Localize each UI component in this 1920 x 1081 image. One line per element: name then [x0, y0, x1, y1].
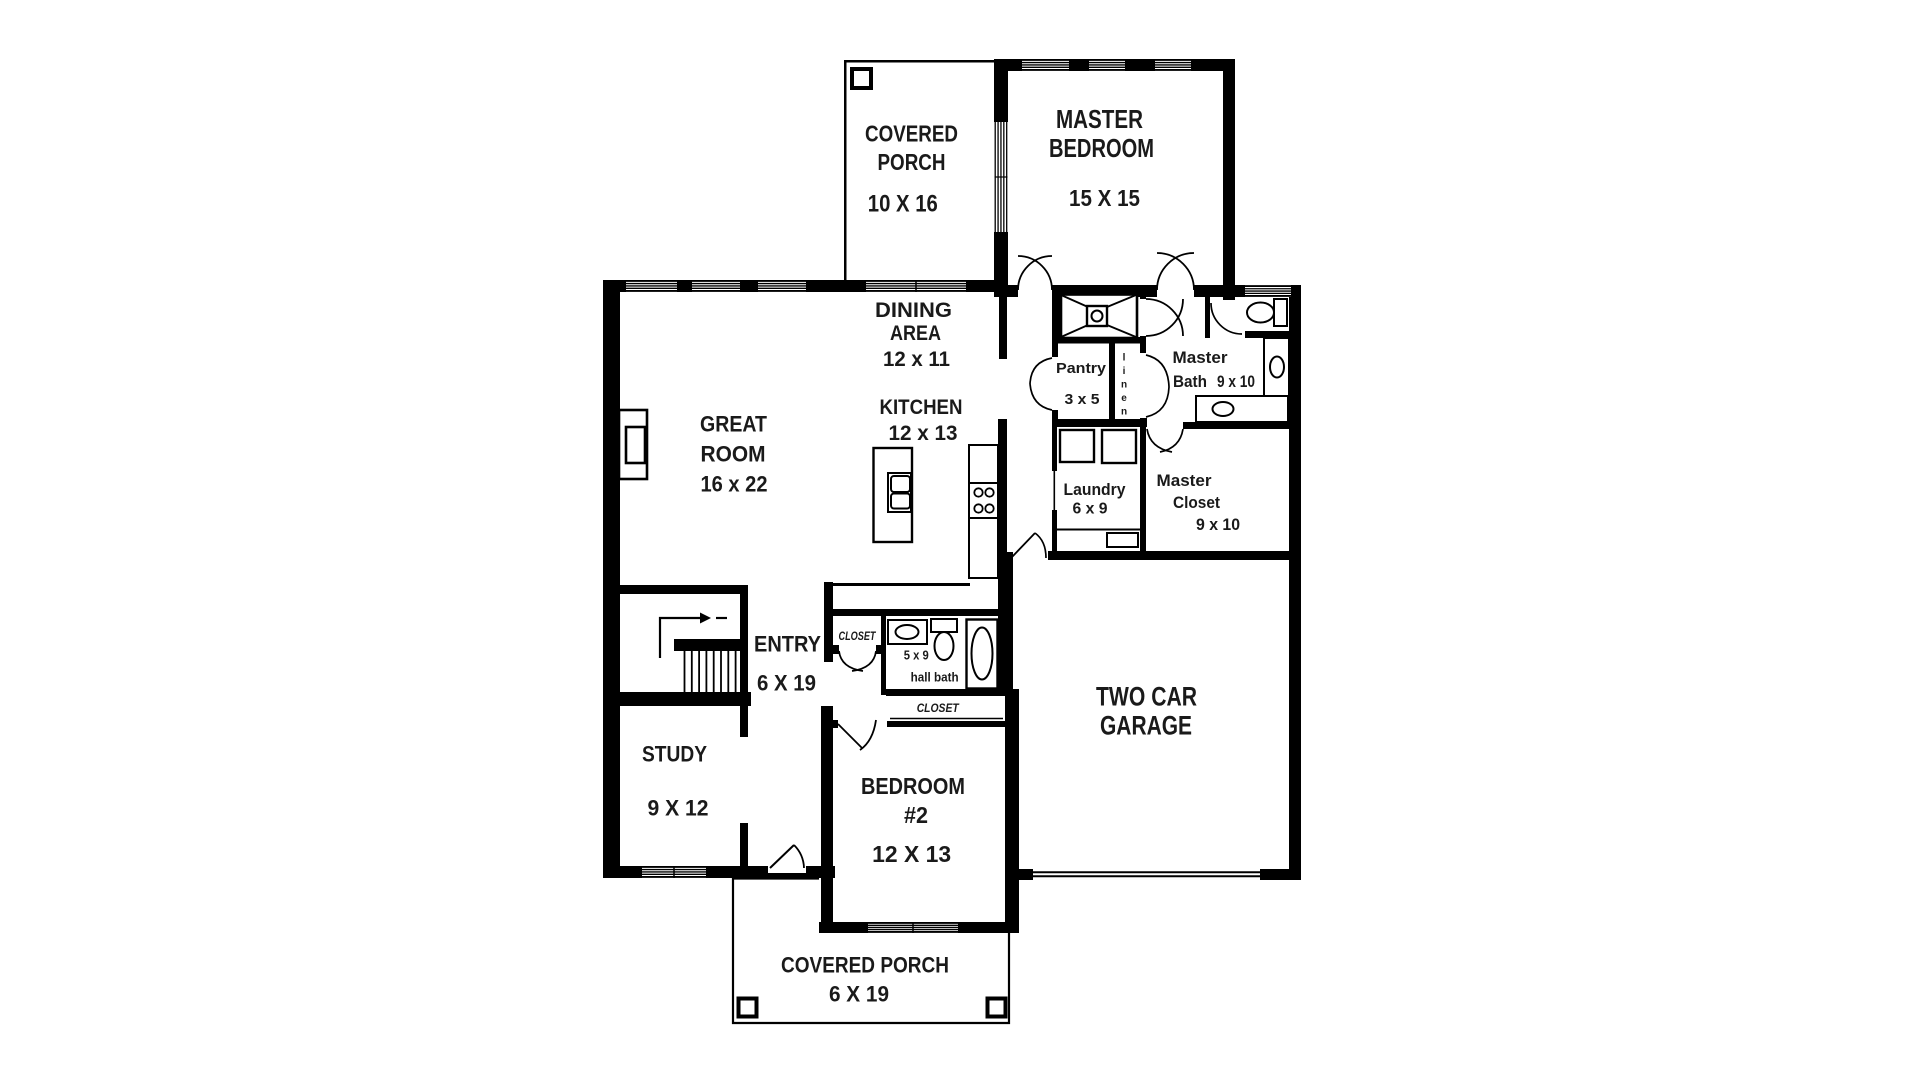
svg-text:KITCHEN: KITCHEN [880, 396, 963, 419]
svg-text:5 x 9: 5 x 9 [904, 648, 929, 663]
svg-text:Master: Master [1173, 348, 1228, 367]
svg-text:DINING: DINING [875, 299, 952, 322]
svg-text:9 X 12: 9 X 12 [648, 796, 709, 821]
svg-text:hall bath: hall bath [911, 670, 959, 685]
svg-text:COVERED PORCH: COVERED PORCH [781, 953, 949, 978]
svg-text:16 x 22: 16 x 22 [701, 472, 768, 497]
svg-text:n: n [1121, 406, 1127, 417]
svg-text:BEDROOM: BEDROOM [861, 773, 965, 799]
svg-text:6 X 19: 6 X 19 [757, 671, 816, 696]
svg-text:CLOSET: CLOSET [839, 629, 877, 643]
svg-text:PORCH: PORCH [878, 149, 946, 175]
svg-text:AREA: AREA [890, 322, 941, 345]
svg-text:STUDY: STUDY [642, 742, 707, 767]
svg-text:6 x 9: 6 x 9 [1073, 501, 1108, 518]
svg-text:12 x 13: 12 x 13 [889, 422, 958, 445]
svg-text:9 x 10: 9 x 10 [1217, 372, 1255, 391]
svg-text:Closet: Closet [1173, 493, 1220, 512]
svg-text:12 X 13: 12 X 13 [872, 841, 951, 867]
svg-text:GREAT: GREAT [700, 412, 767, 437]
svg-text:e: e [1121, 393, 1127, 404]
svg-text:CLOSET: CLOSET [917, 701, 960, 715]
svg-text:ENTRY: ENTRY [754, 632, 821, 657]
svg-text:15 X 15: 15 X 15 [1069, 185, 1140, 211]
svg-text:6 X 19: 6 X 19 [829, 982, 889, 1007]
svg-text:#2: #2 [904, 802, 928, 828]
svg-text:ROOM: ROOM [701, 442, 766, 467]
svg-text:9 x 10: 9 x 10 [1196, 515, 1240, 534]
svg-text:i: i [1123, 366, 1126, 377]
svg-text:TWO CAR: TWO CAR [1096, 681, 1197, 711]
svg-text:10 X 16: 10 X 16 [868, 190, 938, 217]
svg-text:Pantry: Pantry [1056, 361, 1106, 377]
svg-text:12 x 11: 12 x 11 [883, 348, 950, 371]
svg-text:GARAGE: GARAGE [1100, 710, 1192, 740]
svg-text:3 x 5: 3 x 5 [1065, 392, 1100, 408]
svg-text:Bath: Bath [1173, 372, 1207, 391]
svg-text:MASTER: MASTER [1056, 104, 1143, 134]
svg-text:COVERED: COVERED [865, 121, 958, 147]
svg-text:BEDROOM: BEDROOM [1049, 133, 1154, 163]
svg-text:n: n [1121, 379, 1127, 390]
svg-text:Laundry: Laundry [1064, 480, 1127, 499]
svg-text:Master: Master [1157, 471, 1212, 490]
svg-text:l: l [1123, 352, 1126, 363]
